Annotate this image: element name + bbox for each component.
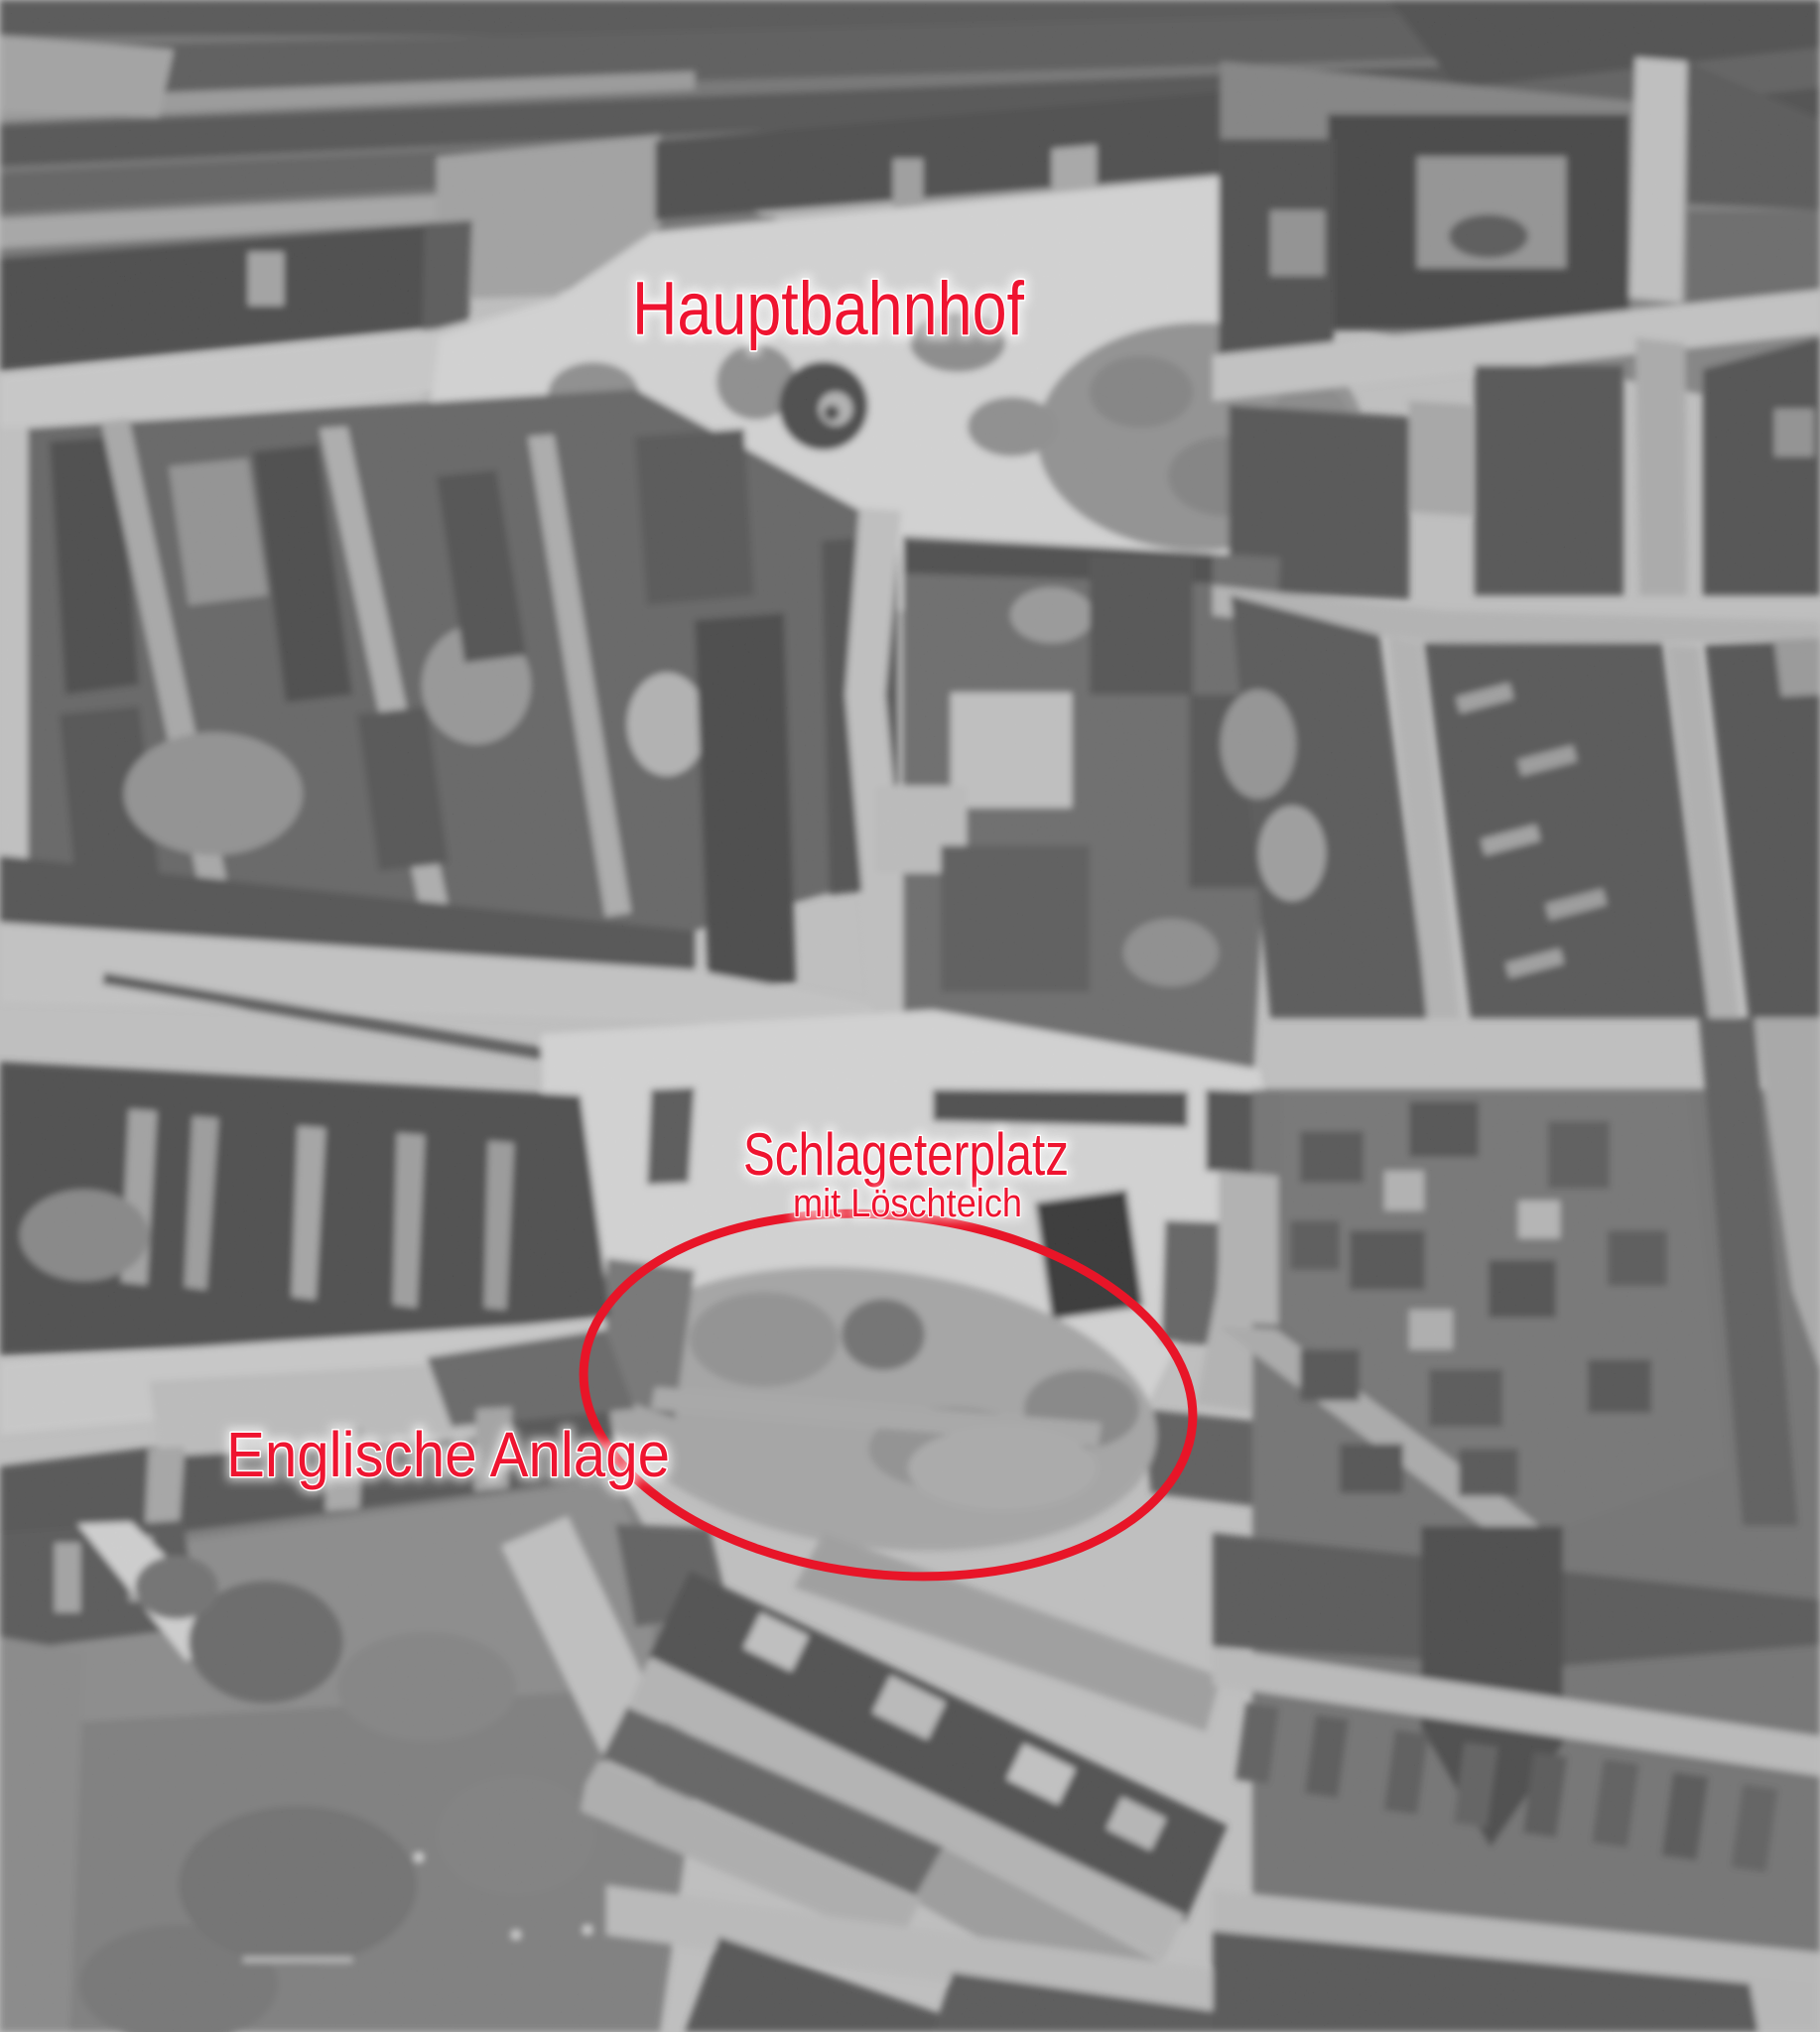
svg-text:mit Löschteich: mit Löschteich [793, 1182, 1022, 1225]
svg-text:Schlageterplatz: Schlageterplatz [743, 1121, 1069, 1188]
svg-text:Hauptbahnhof: Hauptbahnhof [632, 267, 1025, 351]
svg-text:Englische Anlage: Englische Anlage [226, 1419, 670, 1490]
